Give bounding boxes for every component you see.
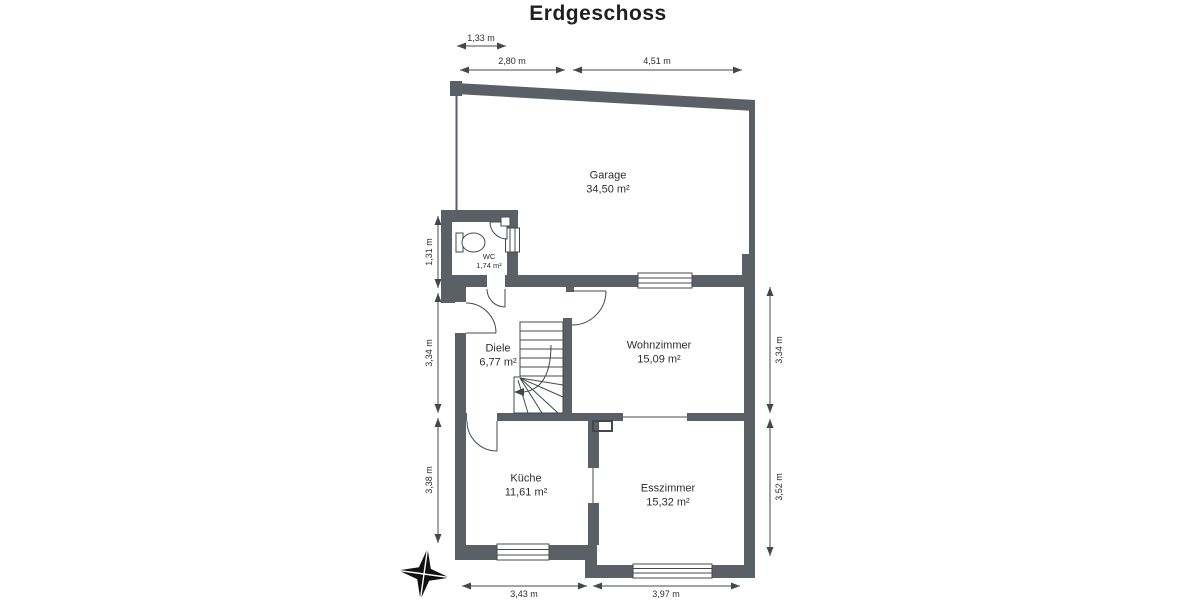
room-area: 11,61 m²	[505, 486, 548, 500]
room-name: Garage	[586, 169, 629, 183]
dim-label-left-3: 3,38 m	[424, 466, 434, 494]
room-area: 34,50 m²	[586, 183, 629, 197]
kueche-door	[467, 421, 497, 451]
room-area: 1,74 m²	[476, 261, 501, 270]
dim-label-right-2: 3,52 m	[774, 473, 784, 501]
room-area: 6,77 m²	[479, 356, 516, 370]
dim-label-right-1: 3,34 m	[774, 336, 784, 364]
room-name: Diele	[479, 342, 516, 356]
floorplan-canvas: Erdgeschoss Garage 34,50 m² WC 1,74 m² D…	[0, 0, 1200, 600]
room-label-garage: Garage 34,50 m²	[586, 169, 629, 198]
dim-label-top-3: 4,51 m	[643, 56, 671, 66]
room-label-esszimmer: Esszimmer 15,32 m²	[641, 482, 695, 511]
room-label-diele: Diele 6,77 m²	[479, 342, 516, 371]
wc-window	[506, 228, 520, 252]
staircase	[514, 322, 563, 413]
room-area: 15,32 m²	[641, 496, 695, 510]
room-name: Küche	[505, 472, 548, 486]
wc-door	[487, 289, 505, 307]
walls	[441, 81, 755, 578]
room-name: Esszimmer	[641, 482, 695, 496]
room-label-kueche: Küche 11,61 m²	[505, 472, 548, 501]
room-area: 15,09 m²	[627, 353, 692, 367]
dim-label-bottom-2: 3,97 m	[652, 589, 680, 599]
compass-rose-icon	[395, 545, 454, 600]
dim-label-bottom-1: 3,43 m	[510, 589, 538, 599]
wohnzimmer-door	[572, 291, 606, 325]
wohnzimmer-window	[638, 273, 692, 288]
room-name: Wohnzimmer	[627, 339, 692, 353]
room-name: WC	[476, 252, 501, 261]
entrance-door	[466, 303, 496, 333]
toilet-icon	[456, 233, 485, 252]
dim-label-left-1: 1,31 m	[424, 238, 434, 266]
dim-label-top-1: 1,33 m	[467, 33, 495, 43]
esszimmer-window	[633, 564, 712, 578]
room-label-wohnzimmer: Wohnzimmer 15,09 m²	[627, 339, 692, 368]
dim-label-left-2: 3,34 m	[424, 339, 434, 367]
room-label-wc: WC 1,74 m²	[476, 252, 501, 270]
dimension-lines	[438, 46, 770, 586]
dim-label-top-2: 2,80 m	[498, 56, 526, 66]
floorplan-drawing	[0, 0, 1200, 600]
kueche-window	[497, 544, 549, 560]
page-title: Erdgeschoss	[529, 2, 666, 26]
